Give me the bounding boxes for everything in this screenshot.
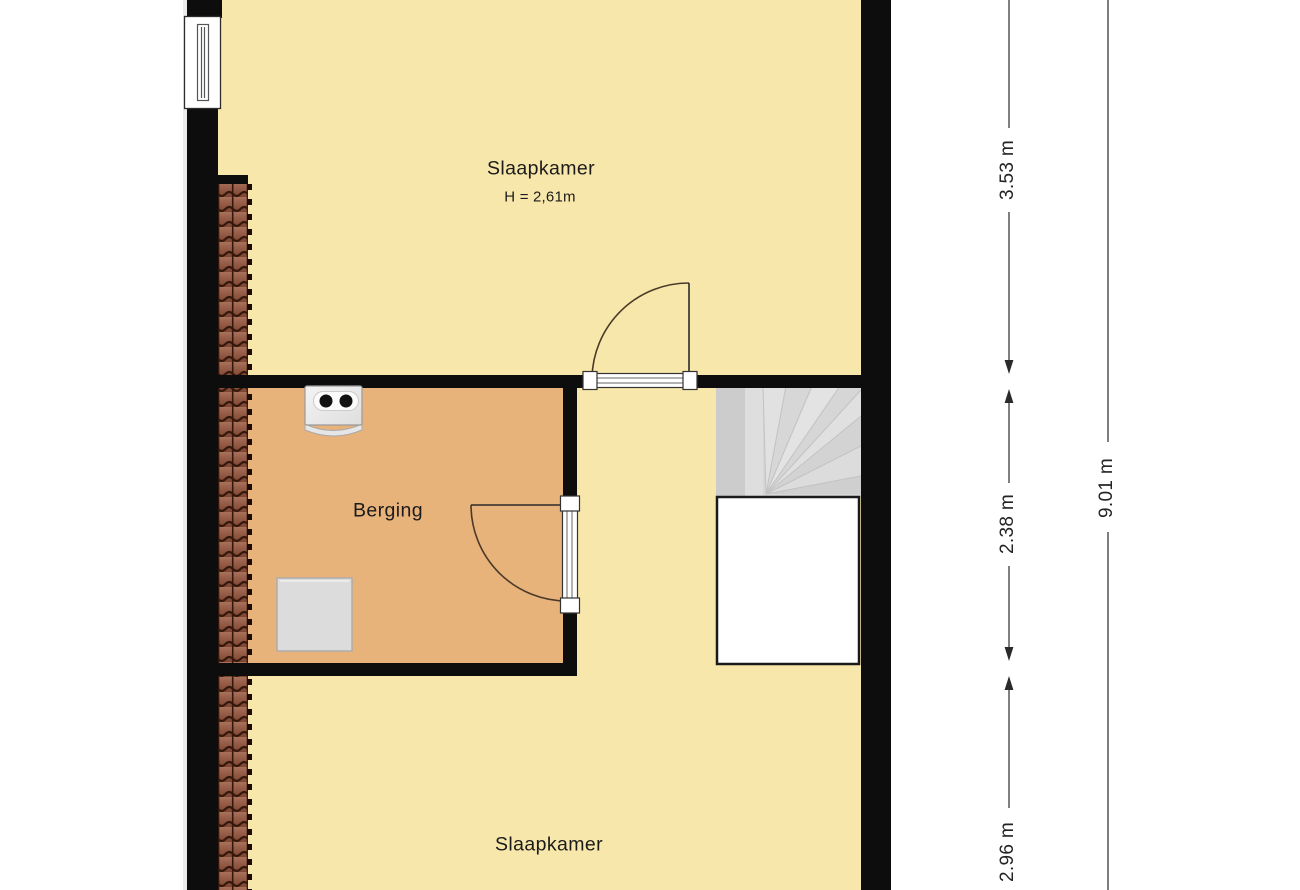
dimension-label-total: 9.01 m: [1096, 458, 1118, 518]
winder-stairs-icon: [716, 386, 861, 497]
roof-tile-hatch-icon: [214, 175, 250, 890]
dimension-label-middle: 2.38 m: [997, 494, 1019, 554]
window-icon: [185, 17, 221, 109]
room-label-bedroom-bottom: Slaapkamer: [495, 834, 603, 857]
wall-middle-left: [187, 375, 583, 388]
room-storage-floor: [218, 387, 563, 663]
stairwell-void: [717, 497, 859, 664]
floorplan-page: Slaapkamer H = 2,61m Berging Slaapkamer …: [0, 0, 1300, 890]
plan-outer-edge: [183, 0, 187, 890]
room-label-bedroom-top: Slaapkamer: [487, 158, 595, 181]
room-label-storage: Berging: [353, 500, 423, 523]
wall-storage-bottom: [187, 663, 577, 676]
dimension-label-bottom: 2.96 m: [997, 822, 1019, 882]
dimension-lines: [1009, 0, 1108, 890]
room-height-note: H = 2,61m: [504, 189, 575, 206]
wall-middle-right: [697, 375, 891, 388]
wall-above-window: [187, 0, 222, 18]
wall-storage-right-top: [563, 375, 577, 497]
floorplan-drawing: [0, 0, 1300, 890]
washer-icon: [277, 578, 352, 651]
dimension-label-top: 3.53 m: [997, 140, 1019, 200]
wall-left: [187, 0, 218, 890]
wall-right: [861, 0, 891, 890]
